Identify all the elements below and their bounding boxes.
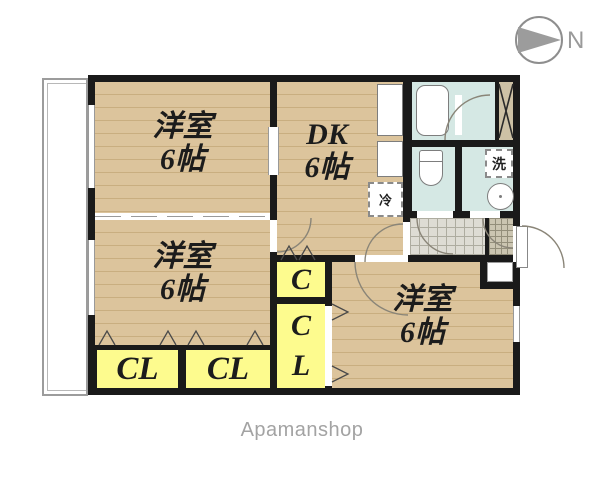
window-bedroom3 [513, 306, 520, 342]
opening-bedroom3-door [355, 255, 408, 262]
kitchen-counter [377, 84, 403, 136]
bedroom3-name: 洋室 [332, 283, 513, 316]
balcony [42, 78, 88, 396]
entrance-door-leaf [516, 226, 528, 268]
dk-name: DK [277, 118, 377, 151]
door-arc-entrance [522, 226, 564, 268]
dk-label: DK 6帖 [277, 118, 377, 184]
balcony-inner-line [47, 83, 86, 391]
opening-bath-door [455, 95, 462, 135]
refrigerator-label: 冷 [379, 190, 392, 209]
bedroom2-size: 6帖 [95, 273, 270, 306]
compass-icon [516, 17, 562, 63]
opening-dk-hall-door [403, 222, 410, 255]
washbasin-drain-icon [499, 195, 502, 198]
sliding-partition-bedroom1-bedroom2 [95, 213, 270, 220]
compass-north-label: N [567, 27, 584, 55]
closet-cl2-label: CL [186, 351, 270, 387]
bedroom3-size: 6帖 [332, 316, 513, 349]
toilet-bowl [419, 161, 443, 186]
closet-column-letter-l: L [277, 346, 325, 386]
bedroom2-label: 洋室 6帖 [95, 240, 270, 306]
dk-size: 6帖 [277, 151, 377, 184]
hallway [410, 218, 485, 255]
opening-washroom-door [470, 211, 500, 218]
bedroom1-size: 6帖 [95, 143, 270, 176]
bedroom2-name: 洋室 [95, 240, 270, 273]
window-bedroom1 [88, 105, 95, 188]
refrigerator-space: 冷 [368, 182, 403, 217]
washing-machine-space: 洗 [485, 149, 513, 178]
closet-cl1-label: CL [97, 351, 178, 387]
entrance-step [487, 262, 513, 282]
bedroom1-label: 洋室 6帖 [95, 110, 270, 176]
closet-column-letter-c: C [277, 306, 325, 346]
closet-column-top-label: C [277, 263, 325, 296]
opening-bedroom2-door [270, 220, 277, 252]
closet-column-opening [325, 306, 332, 386]
entrance-genkan [489, 218, 513, 255]
washer-label: 洗 [492, 154, 506, 174]
bathtub [416, 85, 449, 136]
compass-needle-icon [518, 27, 561, 53]
kitchen-sink-unit [377, 141, 403, 177]
bedroom1-name: 洋室 [95, 110, 270, 143]
opening-toilet-door [417, 211, 453, 218]
window-bedroom2 [88, 240, 95, 315]
bedroom3-label: 洋室 6帖 [332, 283, 513, 349]
closet-column-bottom-label: C L [277, 306, 325, 386]
floorplan-canvas: 冷 洗 [0, 0, 600, 480]
pipe-space [499, 82, 513, 140]
brand-watermark: Apamanshop [241, 419, 364, 442]
compass-circle [516, 17, 562, 63]
